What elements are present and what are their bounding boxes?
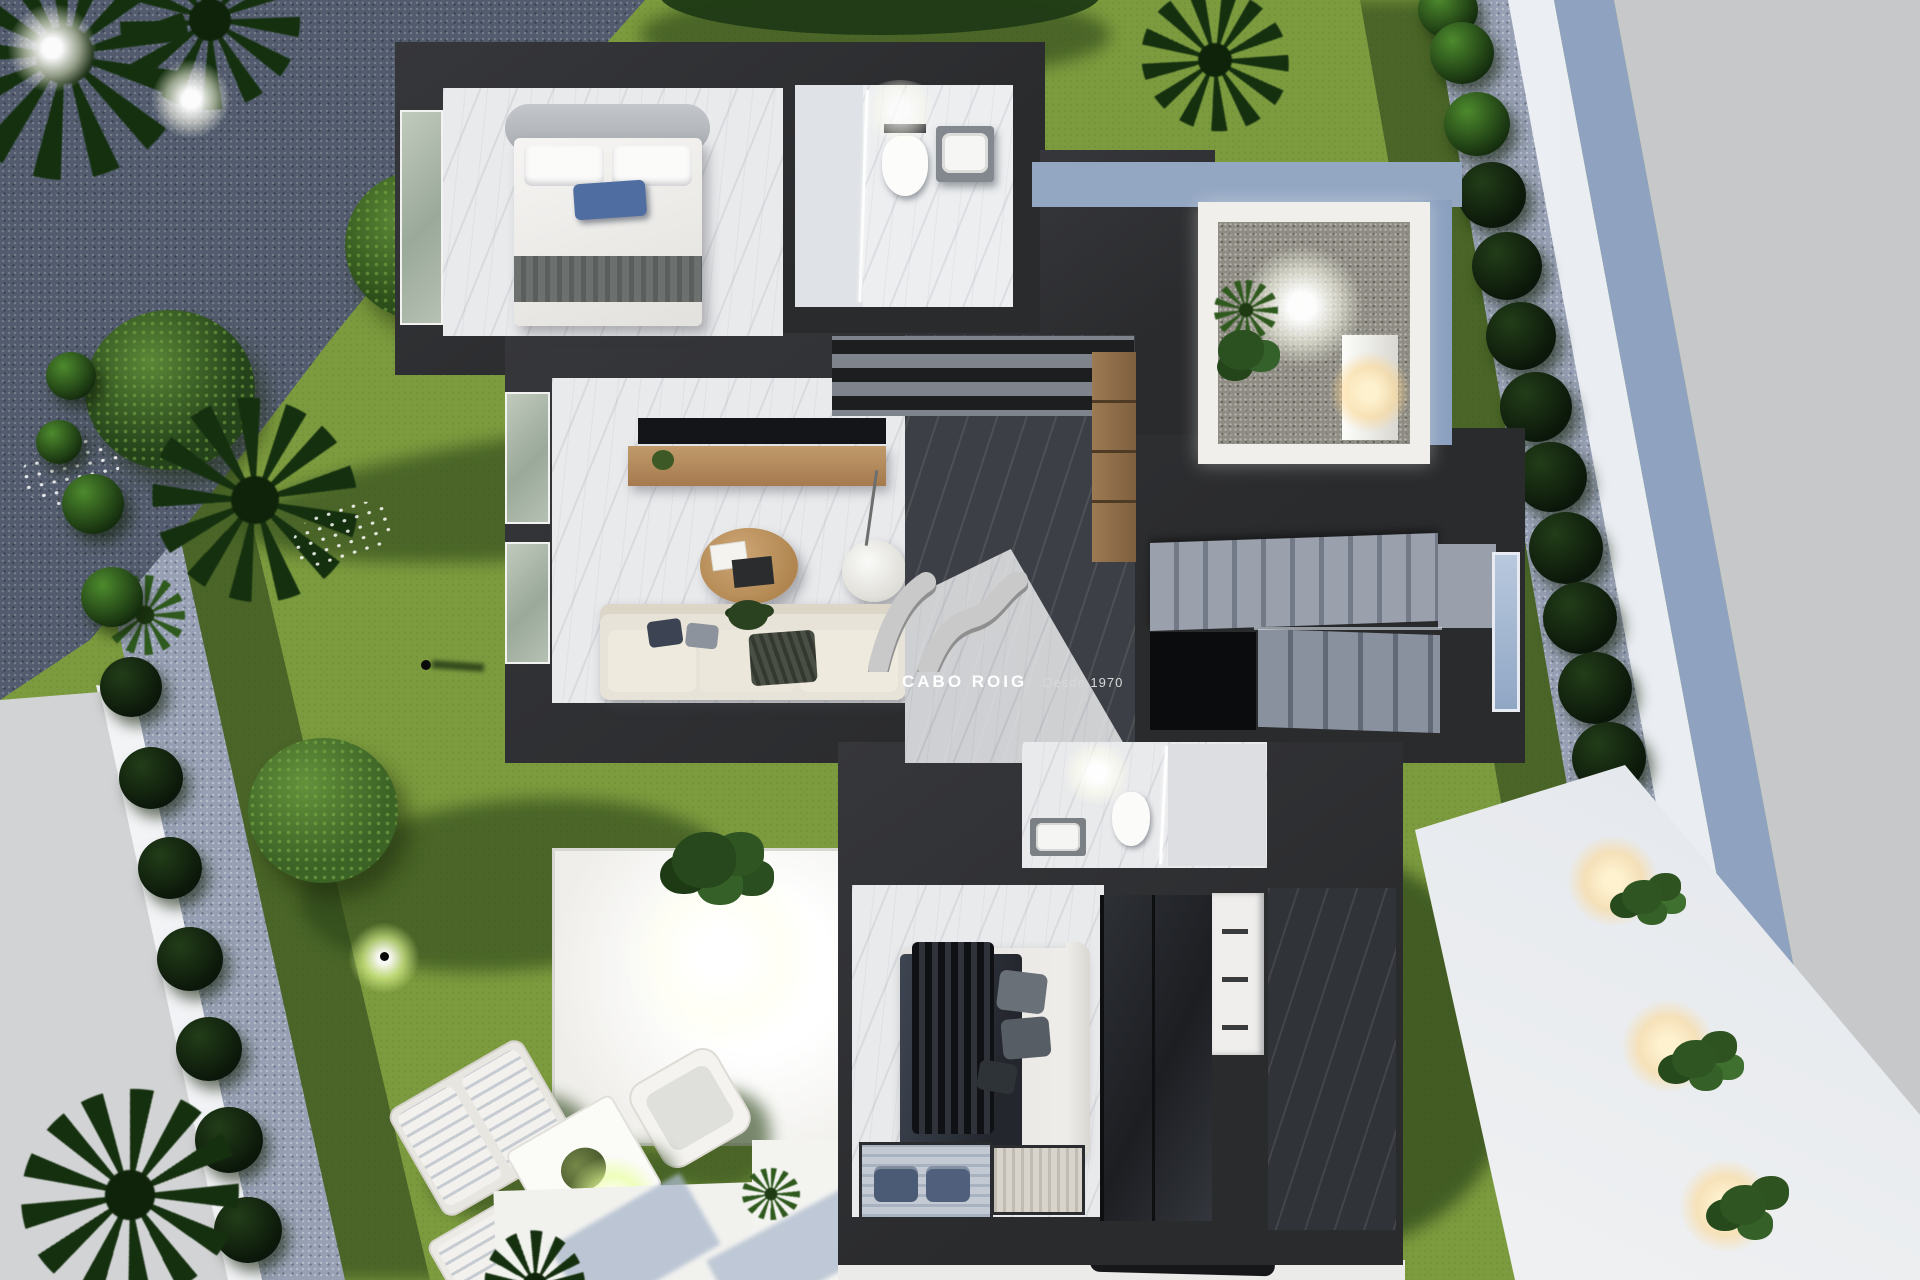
bench-pouf	[926, 1166, 970, 1202]
glossy-wardrobe	[1100, 895, 1212, 1221]
terrace-plant	[672, 832, 736, 888]
drawer-unit	[1212, 893, 1264, 1055]
sofa-pillow	[685, 622, 719, 649]
drawer-handle	[1222, 977, 1248, 982]
boundary-bush	[1444, 92, 1510, 156]
shower-area	[1168, 744, 1266, 866]
ceiling-beam	[832, 340, 1134, 354]
stair-window	[1492, 552, 1520, 712]
bed2-pillow	[976, 1059, 1019, 1095]
leafy-plant	[1672, 1040, 1716, 1078]
shower-area	[795, 85, 863, 307]
staircase-lower-flight	[1258, 629, 1440, 733]
garden-spot-light	[8, 4, 96, 92]
wood-shelving	[1092, 352, 1136, 562]
toilet	[882, 136, 928, 196]
vanity-basin	[1036, 823, 1080, 851]
siv-logo-swoosh	[868, 572, 1028, 672]
vanity-basin	[942, 133, 988, 173]
boundary-bush	[1472, 232, 1542, 300]
watermark-text-row: CABO ROIGDesde 1970	[902, 672, 1123, 692]
boundary-bush	[62, 474, 124, 534]
boundary-bush	[36, 420, 82, 464]
wall-tv	[638, 418, 886, 444]
bathroom1-light	[860, 80, 940, 140]
table-tray	[732, 556, 775, 588]
sideboard-plant	[652, 450, 674, 470]
bed1-throw-blanket	[514, 256, 702, 302]
boundary-bush	[100, 657, 162, 717]
leafy-plant	[1720, 1185, 1766, 1225]
patio-plant	[1218, 330, 1264, 370]
boundary-bush	[46, 352, 96, 400]
terrace-glow	[620, 860, 820, 1050]
garden-spot-light	[152, 60, 230, 138]
watermark: CABO ROIGDesde 1970	[850, 572, 1250, 717]
bed1-pillow	[524, 146, 604, 186]
sofa-throw	[748, 630, 817, 686]
terrace-plant	[742, 1168, 800, 1220]
drawer-handle	[1222, 1025, 1248, 1030]
ceiling-beam	[832, 396, 1134, 410]
boundary-bush	[1458, 162, 1526, 228]
bench-pouf	[874, 1166, 918, 1202]
light-stake	[380, 952, 389, 961]
toilet	[1112, 792, 1150, 846]
sofa-pillow	[646, 618, 683, 648]
bedroom1-window	[400, 110, 443, 325]
boundary-bush	[1543, 582, 1617, 654]
leafy-plant	[1622, 880, 1662, 914]
armchair-cushion	[643, 1062, 737, 1153]
bed2-pillow	[996, 969, 1049, 1015]
garden-tree	[248, 738, 398, 883]
boundary-bush	[1515, 442, 1587, 512]
boundary-bush	[1430, 22, 1494, 84]
area-rug	[994, 1148, 1082, 1212]
shelf-line	[1092, 400, 1136, 403]
living-room-window	[505, 542, 550, 664]
stair-glass-rail	[1254, 627, 1442, 630]
stair-landing	[1438, 544, 1496, 628]
boundary-bush	[1558, 652, 1632, 724]
bed2-headboard	[1066, 942, 1090, 1160]
boundary-bush	[138, 837, 202, 899]
boundary-bush	[119, 747, 183, 809]
light-stake	[421, 660, 431, 670]
boundary-bush	[81, 567, 143, 627]
ceiling-beam	[832, 368, 1134, 382]
patio-path-band	[1032, 162, 1462, 207]
boundary-bush	[1529, 512, 1603, 584]
villa-aerial-render: CABO ROIGDesde 1970	[0, 0, 1920, 1280]
bedroom2-curtains	[912, 942, 994, 1134]
warm-wall-light	[1330, 352, 1410, 432]
walk-in-dark-marble	[1268, 888, 1396, 1230]
shelf-line	[1092, 500, 1136, 503]
brand-tagline: Desde 1970	[1043, 675, 1123, 690]
wardrobe-door-seam	[1152, 895, 1155, 1221]
boundary-bush	[157, 927, 223, 991]
brand-name: CABO ROIG	[902, 672, 1027, 691]
drawer-handle	[1222, 929, 1248, 934]
boundary-bush	[176, 1017, 242, 1081]
sofa-plant-sprig	[728, 600, 768, 630]
living-room-window	[505, 392, 550, 524]
bed2-pillow	[1000, 1016, 1051, 1060]
boundary-bush	[1486, 302, 1556, 370]
bed1-blue-pillow	[573, 180, 647, 221]
shelf-line	[1092, 450, 1136, 453]
